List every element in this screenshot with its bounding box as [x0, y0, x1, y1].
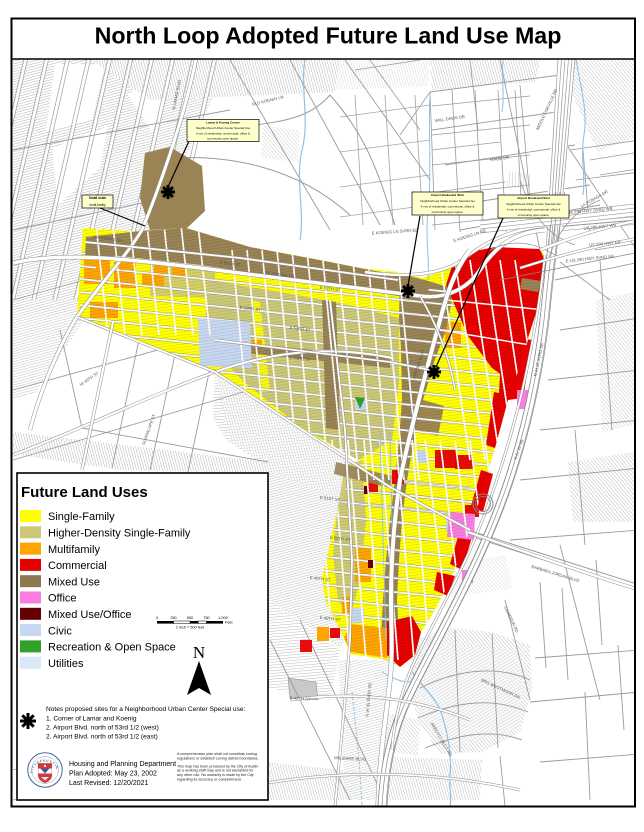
- svg-text:Notes proposed sites for a Nei: Notes proposed sites for a Neighborhood …: [46, 706, 246, 713]
- svg-text:500: 500: [187, 616, 193, 620]
- svg-text:Higher-Density Single-Family: Higher-Density Single-Family: [48, 528, 191, 540]
- svg-text:1 inch = 500 feet: 1 inch = 500 feet: [176, 626, 205, 630]
- svg-text:regulations or establish zonin: regulations or establish zoning district…: [177, 756, 259, 760]
- svg-text:regarding its accuracy or comp: regarding its accuracy or completeness.: [177, 778, 242, 782]
- svg-text:A mix of residential, commerci: A mix of residential, commercial, office…: [421, 205, 475, 209]
- svg-text:community open space.: community open space.: [432, 210, 464, 214]
- svg-text:Mixed Use/Office: Mixed Use/Office: [48, 609, 132, 621]
- svg-text:Housing and Planning Departmen: Housing and Planning Department: [69, 761, 176, 768]
- svg-text:750: 750: [203, 616, 209, 620]
- svg-text:community open space.: community open space.: [207, 137, 239, 141]
- svg-text:multi-family: multi-family: [89, 203, 106, 207]
- svg-text:Neighborhood Urban Center Spec: Neighborhood Urban Center Special Use: [420, 199, 475, 203]
- svg-text:Neighborhood Urban Center Spec: Neighborhood Urban Center Special Use: [506, 202, 561, 206]
- svg-text:2. Airport Blvd. north of 53rd: 2. Airport Blvd. north of 53rd 1/2 (east…: [46, 734, 158, 741]
- svg-text:Neighborhood Urban Center Spec: Neighborhood Urban Center Special Use: [196, 126, 251, 130]
- svg-text:any other use. No warranty is: any other use. No warranty is made by th…: [177, 773, 254, 777]
- svg-text:Feet: Feet: [225, 621, 234, 625]
- svg-text:This map has been produced by: This map has been produced by the City o…: [177, 764, 258, 768]
- svg-text:N: N: [193, 643, 205, 662]
- svg-text:Utilities: Utilities: [48, 658, 84, 670]
- svg-text:Plan Adopted: May 23, 2002: Plan Adopted: May 23, 2002: [69, 771, 157, 778]
- svg-text:community open space.: community open space.: [518, 213, 550, 217]
- svg-text:Airport Boulevard West: Airport Boulevard West: [431, 193, 464, 197]
- svg-text:A mix of residential, commerci: A mix of residential, commercial, office…: [507, 208, 561, 212]
- svg-text:1,000: 1,000: [218, 616, 228, 620]
- svg-text:Last Revised: 12/20/2021: Last Revised: 12/20/2021: [69, 780, 148, 787]
- svg-text:Mixed Use: Mixed Use: [48, 576, 100, 588]
- svg-text:Civic: Civic: [48, 625, 72, 637]
- svg-text:Airport Boulevard East: Airport Boulevard East: [517, 196, 550, 200]
- svg-text:Office: Office: [48, 593, 77, 605]
- svg-text:250: 250: [170, 616, 176, 620]
- svg-text:Single-Family: Single-Family: [48, 511, 115, 523]
- svg-text:Multifamily: Multifamily: [48, 544, 100, 556]
- svg-text:Commercial: Commercial: [48, 560, 107, 572]
- svg-text:1. Corner of Lamar and Koenig: 1. Corner of Lamar and Koenig: [46, 716, 137, 723]
- svg-text:Future Land Uses: Future Land Uses: [21, 484, 148, 501]
- svg-text:0: 0: [156, 616, 158, 620]
- svg-text:Lamar & Koenig Corner: Lamar & Koenig Corner: [206, 121, 241, 125]
- svg-text:North Loop Adopted Future Land: North Loop Adopted Future Land Use Map: [95, 23, 562, 49]
- svg-text:2. Airport Blvd. north of 53rd: 2. Airport Blvd. north of 53rd 1/2 (west…: [46, 725, 159, 732]
- svg-text:as a working staff map and is: as a working staff map and is not warran…: [177, 769, 254, 773]
- svg-text:Small scale: Small scale: [89, 196, 107, 200]
- svg-text:Recreation & Open Space: Recreation & Open Space: [48, 642, 176, 654]
- svg-text:A comprehensive plan shall not: A comprehensive plan shall not constitut…: [177, 752, 257, 756]
- svg-text:A mix of residential, commerci: A mix of residential, commercial, office…: [196, 131, 250, 135]
